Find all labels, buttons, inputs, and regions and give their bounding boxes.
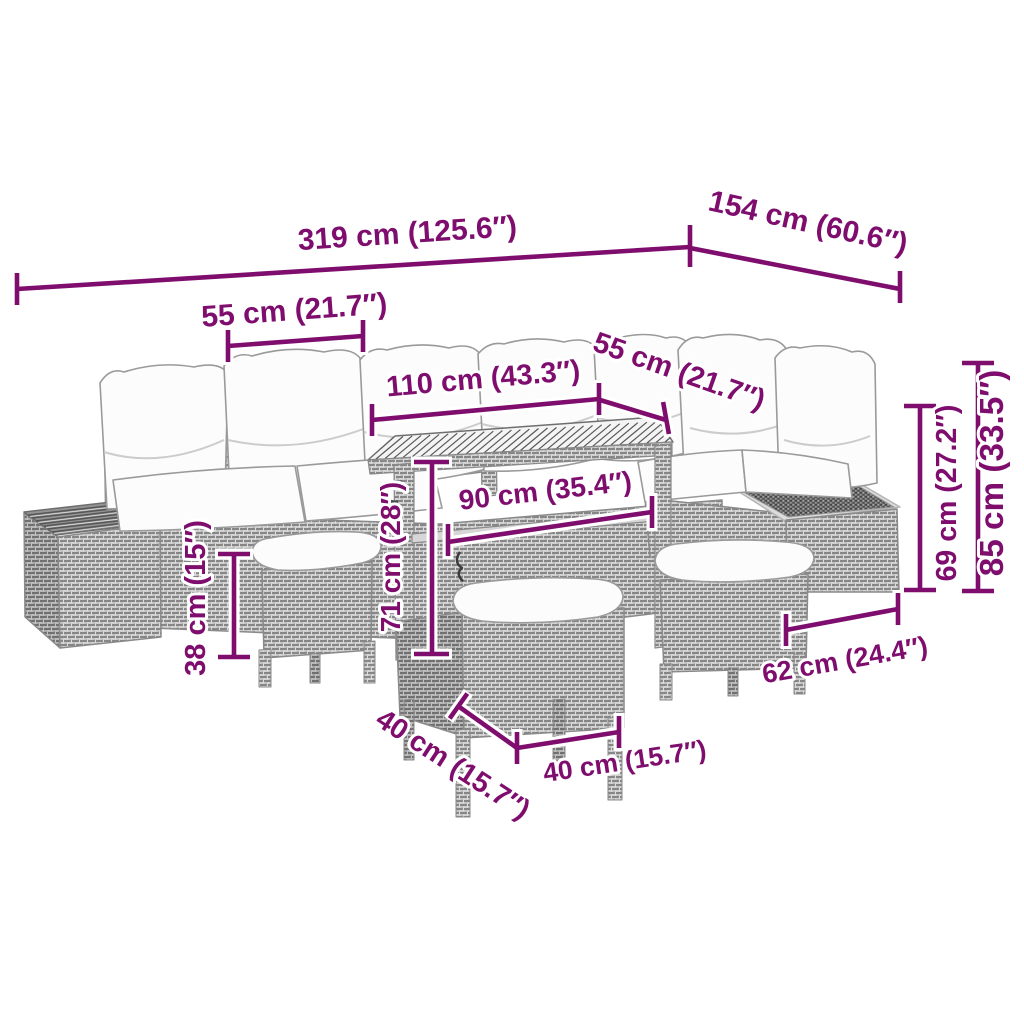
svg-text:69 cm (27.2″): 69 cm (27.2″)	[931, 405, 963, 582]
svg-text:38 cm (15″): 38 cm (15″)	[180, 520, 212, 676]
svg-text:85 cm (33.5″): 85 cm (33.5″)	[974, 370, 1011, 577]
svg-text:71 cm (28″): 71 cm (28″)	[375, 482, 406, 632]
